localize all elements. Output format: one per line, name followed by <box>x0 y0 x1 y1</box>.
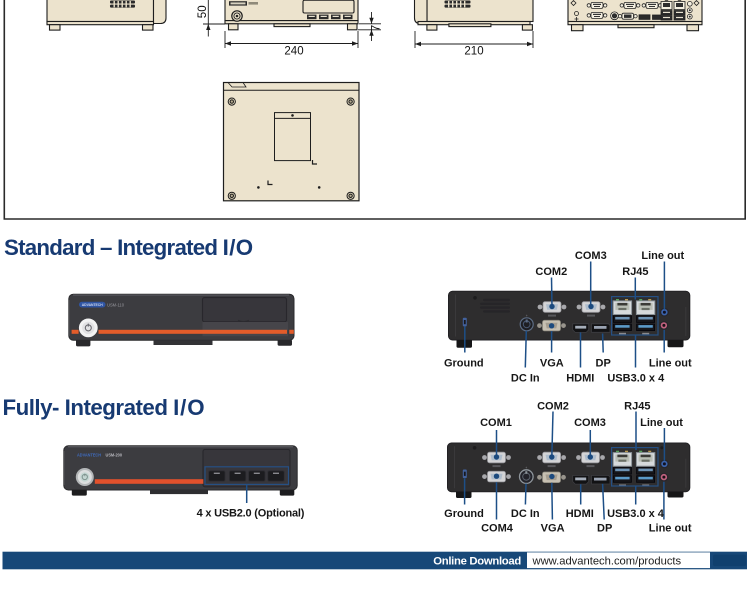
svg-text:HDMI: HDMI <box>566 508 594 520</box>
svg-text:Online Download: Online Download <box>433 556 521 568</box>
svg-text:+: + <box>525 466 527 470</box>
svg-text:7: 7 <box>371 25 383 31</box>
svg-text:DP: DP <box>597 522 612 534</box>
svg-text:USM-110: USM-110 <box>107 303 125 308</box>
svg-text:4 x USB2.0 (Optional): 4 x USB2.0 (Optional) <box>197 508 305 520</box>
svg-text:RJ45: RJ45 <box>622 266 648 278</box>
svg-text:DC In: DC In <box>511 372 540 384</box>
svg-text:ADVANTECH: ADVANTECH <box>82 303 103 307</box>
svg-text:HDMI: HDMI <box>566 372 594 384</box>
svg-text:Ground: Ground <box>444 508 484 520</box>
svg-text:240: 240 <box>284 46 303 58</box>
svg-text:USM-200: USM-200 <box>106 452 123 457</box>
svg-text:COM4: COM4 <box>481 522 514 534</box>
svg-text:210: 210 <box>464 46 483 58</box>
svg-text:Line out: Line out <box>649 357 692 369</box>
svg-text:DP: DP <box>596 357 611 369</box>
svg-text:Standard – Integrated I / O: Standard – Integrated I / O <box>4 235 253 260</box>
svg-text:ADVANTECH: ADVANTECH <box>77 452 101 458</box>
svg-text:Line out: Line out <box>641 250 684 262</box>
svg-text:USB3.0 x 4: USB3.0 x 4 <box>607 372 665 384</box>
svg-text:VGA: VGA <box>541 522 565 534</box>
svg-text:Fully- Integrated I / O: Fully- Integrated I / O <box>3 395 205 420</box>
svg-text:Line out: Line out <box>640 417 683 429</box>
svg-text:COM2: COM2 <box>537 400 569 412</box>
svg-text:Line out: Line out <box>649 522 692 534</box>
svg-text:50: 50 <box>197 5 209 18</box>
svg-text:COM1: COM1 <box>480 417 512 429</box>
svg-text:COM3: COM3 <box>574 417 606 429</box>
svg-text:COM3: COM3 <box>575 250 607 262</box>
svg-text:DC In: DC In <box>511 508 540 520</box>
svg-text:USB3.0 x 4: USB3.0 x 4 <box>607 508 665 520</box>
svg-text:Ground: Ground <box>444 357 484 369</box>
svg-text:COM2: COM2 <box>535 266 567 278</box>
svg-text:RJ45: RJ45 <box>624 400 650 412</box>
svg-text:www.advantech.com/products: www.advantech.com/products <box>532 555 682 567</box>
svg-text:+: + <box>526 314 528 318</box>
svg-text:VGA: VGA <box>540 357 564 369</box>
